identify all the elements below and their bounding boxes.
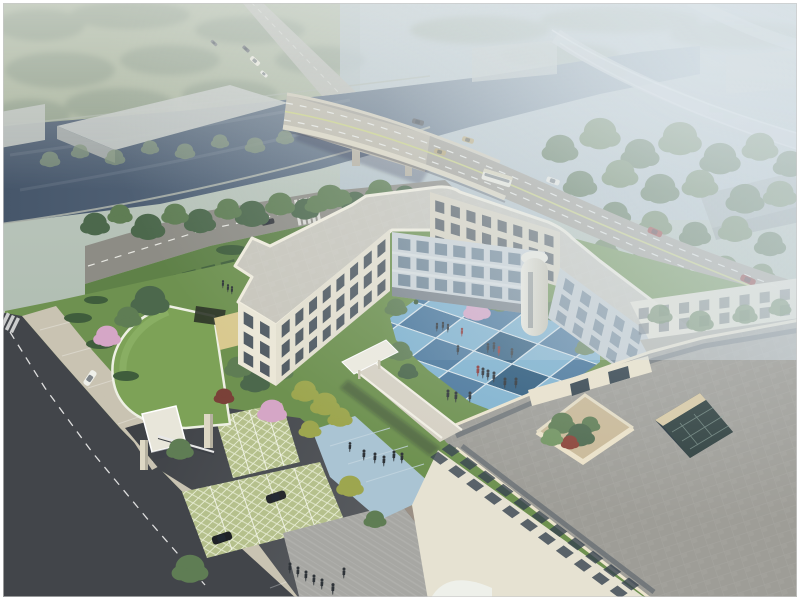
mist-overlay xyxy=(0,0,800,600)
aerial-rendering xyxy=(0,0,800,600)
rendering-canvas xyxy=(0,0,800,600)
